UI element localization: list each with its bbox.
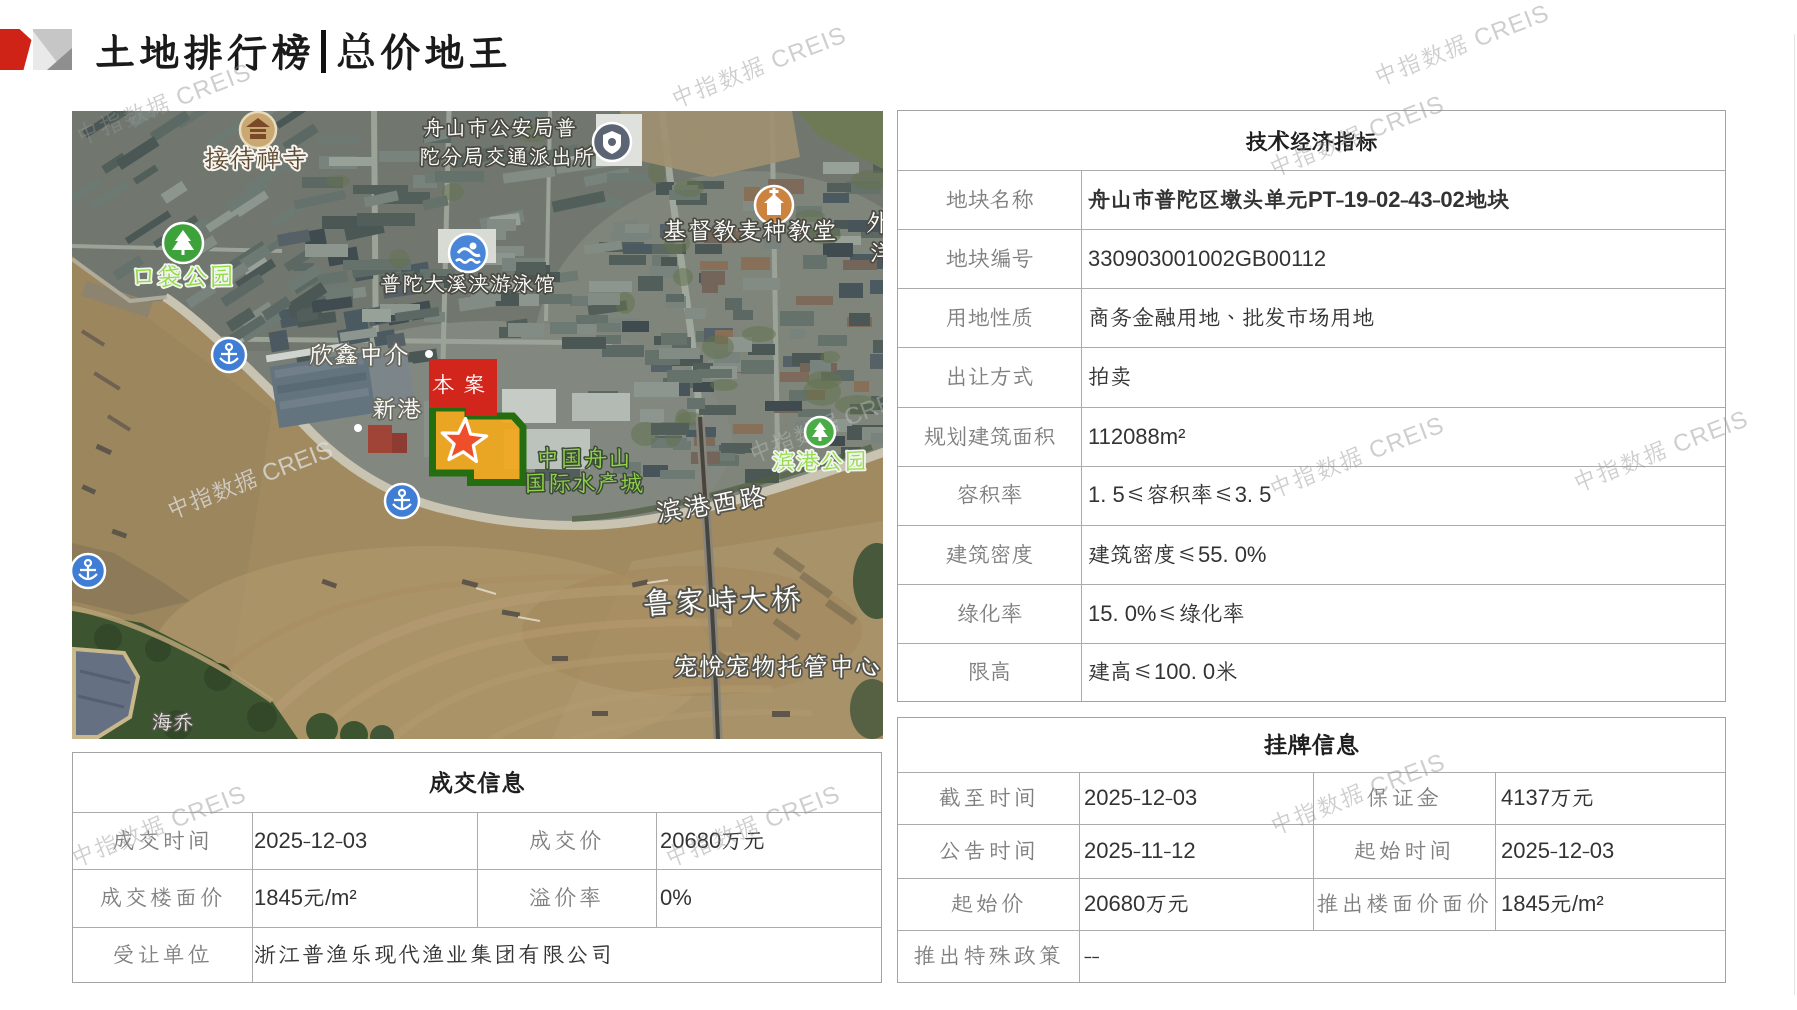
- svg-text:口袋公园: 口袋公园: [131, 260, 235, 293]
- svg-text:普陀大溪浃游泳馆: 普陀大溪浃游泳馆: [380, 269, 556, 297]
- svg-text:陀分局交通派出所: 陀分局交通派出所: [419, 142, 595, 170]
- svg-text:鲁家峙大桥: 鲁家峙大桥: [642, 577, 803, 623]
- svg-text:外: 外: [866, 206, 883, 238]
- svg-text:基督教麦种教堂: 基督教麦种教堂: [663, 214, 838, 246]
- svg-text:洋: 洋: [870, 236, 883, 268]
- svg-text:本案: 本案: [432, 370, 494, 399]
- svg-text:接待禅寺: 接待禅寺: [204, 142, 308, 175]
- svg-text:宠悦宠物托管中心: 宠悦宠物托管中心: [673, 650, 881, 683]
- svg-text:滨港公园: 滨港公园: [772, 445, 868, 476]
- svg-text:舟山市公安局普: 舟山市公安局普: [423, 113, 577, 141]
- svg-text:国际水产城: 国际水产城: [524, 467, 644, 498]
- svg-text:海乔: 海乔: [152, 708, 194, 735]
- svg-text:欣鑫中介: 欣鑫中介: [309, 338, 409, 370]
- svg-text:新港: 新港: [372, 392, 422, 424]
